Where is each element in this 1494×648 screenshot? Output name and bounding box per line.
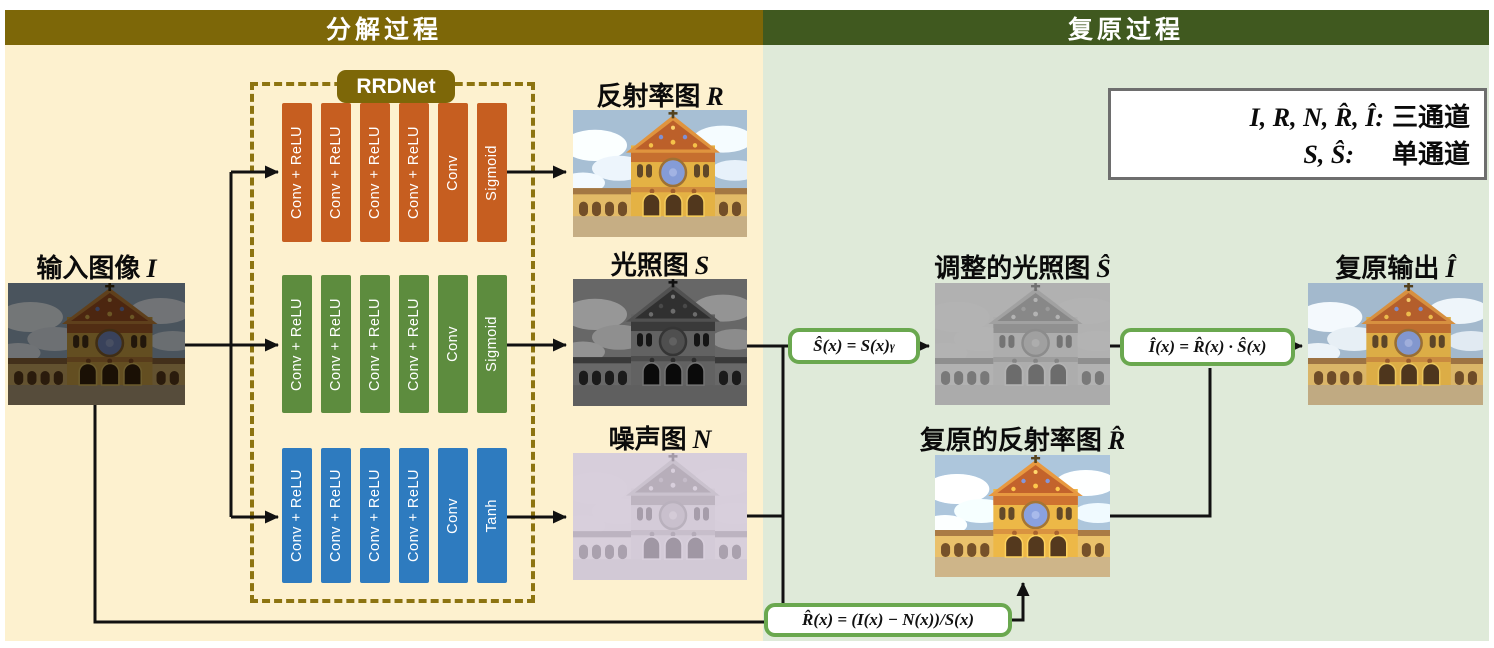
illumination-map-label: 光照图S bbox=[563, 245, 757, 282]
conv-relu-block: Conv + ReLU bbox=[282, 448, 312, 583]
conv-relu-block: Conv + ReLU bbox=[360, 448, 390, 583]
restored-output-label: 复原输出Î bbox=[1298, 248, 1493, 285]
reflectance-recovery-formula: R̂(x) = (I(x) − N(x))/S(x) bbox=[764, 603, 1012, 637]
channel-legend: I, R, N, R̂, Î: 三通道 S, Ŝ: 单通道 bbox=[1108, 88, 1487, 180]
gamma-correction-formula: Ŝ(x) = S(x)γ bbox=[788, 328, 920, 364]
illumination-branch: Conv + ReLU Conv + ReLU Conv + ReLU Conv… bbox=[282, 275, 508, 413]
adjusted-illumination-thumbnail bbox=[935, 283, 1110, 405]
restored-output-thumbnail bbox=[1308, 283, 1483, 405]
conv-block: Conv bbox=[438, 448, 468, 583]
conv-relu-block: Conv + ReLU bbox=[399, 448, 429, 583]
rrdnet-title-badge: RRDNet bbox=[337, 70, 455, 103]
tanh-block: Tanh bbox=[477, 448, 507, 583]
reflectance-map-label: 反射率图R bbox=[563, 76, 757, 113]
conv-block: Conv bbox=[438, 275, 468, 413]
conv-relu-block: Conv + ReLU bbox=[321, 275, 351, 413]
restoration-formula: Î(x) = R̂(x) · Ŝ(x) bbox=[1120, 328, 1295, 366]
sigmoid-block: Sigmoid bbox=[477, 275, 507, 413]
noise-branch: Conv + ReLU Conv + ReLU Conv + ReLU Conv… bbox=[282, 448, 508, 583]
input-image-label: 输入图像I bbox=[0, 248, 193, 285]
conv-relu-block: Conv + ReLU bbox=[399, 103, 429, 242]
illumination-map-thumbnail bbox=[573, 279, 747, 406]
legend-single-channel-line: S, Ŝ: 单通道 bbox=[1303, 134, 1470, 171]
decomposition-header: 分解过程 bbox=[5, 10, 763, 45]
adjusted-illumination-label: 调整的光照图Ŝ bbox=[905, 248, 1140, 285]
restored-reflectance-thumbnail bbox=[935, 455, 1110, 577]
sigmoid-block: Sigmoid bbox=[477, 103, 507, 242]
reflectance-branch: Conv + ReLU Conv + ReLU Conv + ReLU Conv… bbox=[282, 103, 508, 242]
conv-block: Conv bbox=[438, 103, 468, 242]
conv-relu-block: Conv + ReLU bbox=[282, 103, 312, 242]
reflectance-map-thumbnail bbox=[573, 110, 747, 237]
conv-relu-block: Conv + ReLU bbox=[321, 448, 351, 583]
conv-relu-block: Conv + ReLU bbox=[321, 103, 351, 242]
restoration-header: 复原过程 bbox=[763, 10, 1489, 45]
conv-relu-block: Conv + ReLU bbox=[282, 275, 312, 413]
legend-three-channel-line: I, R, N, R̂, Î: 三通道 bbox=[1250, 97, 1470, 134]
input-image-thumbnail bbox=[8, 283, 185, 405]
conv-relu-block: Conv + ReLU bbox=[360, 103, 390, 242]
conv-relu-block: Conv + ReLU bbox=[399, 275, 429, 413]
conv-relu-block: Conv + ReLU bbox=[360, 275, 390, 413]
restored-reflectance-label: 复原的反射率图R̂ bbox=[885, 420, 1160, 457]
rrdnet-architecture-diagram: 分解过程 复原过程 RRDNet Conv + ReLU Conv + ReLU… bbox=[0, 0, 1494, 648]
noise-map-thumbnail bbox=[573, 453, 747, 580]
noise-map-label: 噪声图N bbox=[563, 419, 757, 456]
